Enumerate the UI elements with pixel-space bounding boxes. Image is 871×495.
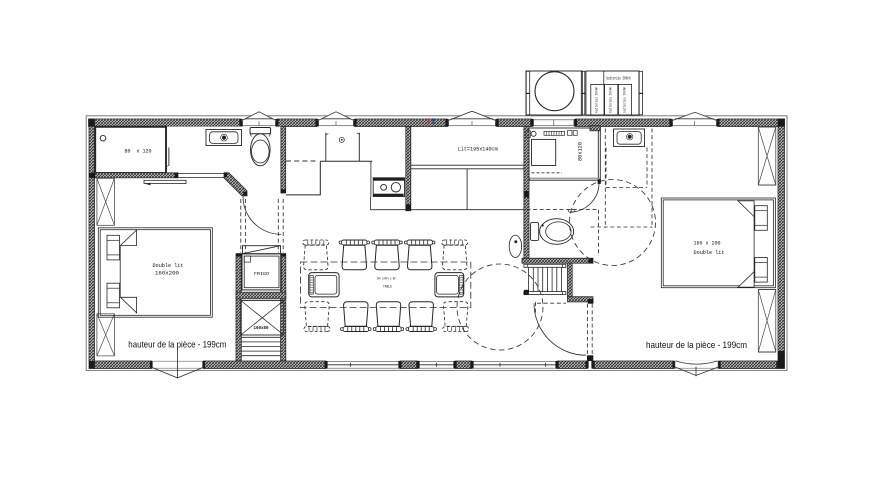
svg-text:batteries 200Ah: batteries 200Ah	[622, 87, 627, 113]
svg-text:160x60: 160x60	[254, 325, 269, 331]
svg-text:Double lit: Double lit	[694, 250, 725, 256]
svg-text:hauteur de la pièce - 199cm: hauteur de la pièce - 199cm	[646, 339, 747, 350]
svg-text:batteries 200Ah: batteries 200Ah	[595, 87, 600, 113]
svg-text:batteries 300Ah: batteries 300Ah	[607, 77, 631, 82]
svg-text:FRIGO: FRIGO	[254, 273, 270, 277]
svg-text:Lit=195x140cm: Lit=195x140cm	[458, 145, 499, 152]
svg-text:TABLE: TABLE	[383, 286, 392, 290]
svg-text:160x200: 160x200	[155, 271, 179, 277]
svg-text:batteries 200Ah: batteries 200Ah	[609, 87, 614, 113]
svg-text:80x120: 80x120	[578, 142, 584, 161]
svg-text:160 x 200: 160 x 200	[694, 240, 721, 246]
svg-text:80 x 120: 80 x 120	[125, 149, 152, 155]
svg-text:140 (240) x 80: 140 (240) x 80	[377, 277, 396, 282]
svg-text:Double lit: Double lit	[153, 263, 184, 269]
svg-text:hauteur de la pièce - 199cm: hauteur de la pièce - 199cm	[128, 338, 226, 349]
